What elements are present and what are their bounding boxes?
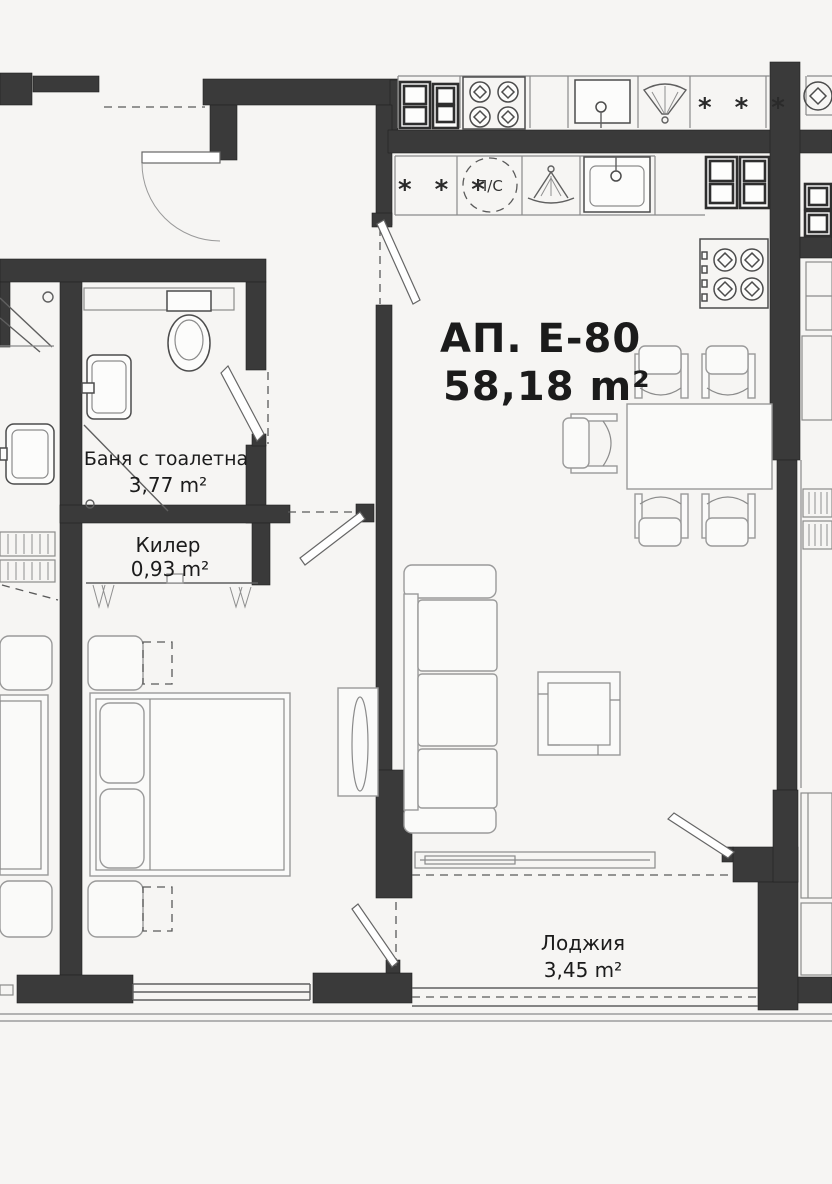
fridge-icon [744,161,765,181]
neighbor-nightstand [0,881,52,937]
bathroom-door-leaf [221,366,264,441]
neighbor-parapet [801,793,832,898]
living-room [404,565,620,833]
wall-right [777,460,797,790]
washer-dryer-label: П/С [476,177,503,195]
entrance-door-leaf [142,152,220,163]
toilet-icon [167,291,211,371]
fridge-icon [437,106,454,122]
washbasin-icon [82,355,131,419]
wall-neighbor [798,977,832,1003]
stove-icon [463,77,525,129]
chair [635,494,688,546]
bedroom-door-leaf [352,904,398,967]
armchair [563,414,617,473]
wall-left [60,282,82,975]
wall [246,282,266,370]
neighbor-right [801,76,832,975]
closet-label: Килер [136,533,201,557]
wall [0,282,10,347]
hood-icon [644,84,686,123]
floor-plan-svg: * * * * * * П/С [0,0,832,1184]
wall-kitchen-band [388,130,832,153]
bed [90,693,290,876]
wall-neighbor [800,237,832,258]
chair [702,494,755,546]
wardrobe [338,688,378,796]
wall [33,76,99,92]
wall [203,79,398,105]
bathroom-area: 3,77 m² [129,473,207,497]
neighbor-cabinet [809,215,827,232]
sink-icon [584,156,650,212]
wall [313,973,412,1003]
entrance-door-arc [142,163,220,241]
neighbor-radiator [803,489,832,549]
neighbor-shower-head [43,292,53,302]
fridge-icon [710,161,733,181]
hall-door-leaf [300,512,365,565]
sofa [404,565,497,833]
bedroom [88,636,378,937]
fridge-icon [437,88,454,104]
stove-icon [700,239,768,308]
neighbor-radiator [0,532,58,600]
sink-icon [575,80,630,128]
wall [252,523,270,585]
fridge-icon [710,184,733,203]
labels: АП. Е-80 58,18 m² Баня с тоалетна 3,77 m… [84,316,651,982]
kitchen: * * * П/С [395,156,769,308]
coffee-table [538,672,620,755]
hood-icon [528,166,574,203]
neighbor-washbasin [0,424,54,484]
nightstand-dashed [143,887,172,931]
neighbor-left [0,292,58,995]
neighbor-burner-icon [804,82,832,110]
dining-table [627,404,772,489]
fridge-icon [404,107,426,124]
hanger-icon [230,587,251,607]
neighbor-cabinet [809,188,827,205]
neighbor-kitchen-top: * * * [398,76,792,129]
wall [773,790,798,882]
nightstand [88,881,143,937]
fridge-icon [404,86,426,104]
exterior-lines [0,1014,832,1021]
fridge-icon [744,184,765,203]
wall-bath-bottom [60,505,290,523]
loggia-area: 3,45 m² [544,958,622,982]
freezer-symbol: * * * [698,93,792,123]
neighbor-nightstand [0,636,52,690]
loggia-label: Лоджия [541,931,625,955]
apartment-area: 58,18 m² [443,364,651,410]
neighbor-furniture [802,336,832,420]
chair [702,346,755,398]
balcony-door-leaf [668,813,734,858]
hanger-icon [93,585,114,607]
wall [17,975,133,1003]
kitchen-door-leaf [377,220,420,304]
nightstand-dashed [143,642,172,684]
wall [376,105,392,225]
wall-loggia-right [758,882,798,1010]
closet-area: 0,93 m² [131,557,209,581]
neighbor-sill [0,985,13,995]
neighbor-parapet [801,903,832,975]
bedroom-window [133,984,310,1000]
wall-bath-top [0,259,266,282]
floor-plan-page: * * * * * * П/С [0,0,832,1184]
bathroom-label: Баня с тоалетна [84,448,248,470]
nightstand [88,636,143,690]
wall [0,73,32,105]
apartment-title: АП. Е-80 [440,316,641,362]
